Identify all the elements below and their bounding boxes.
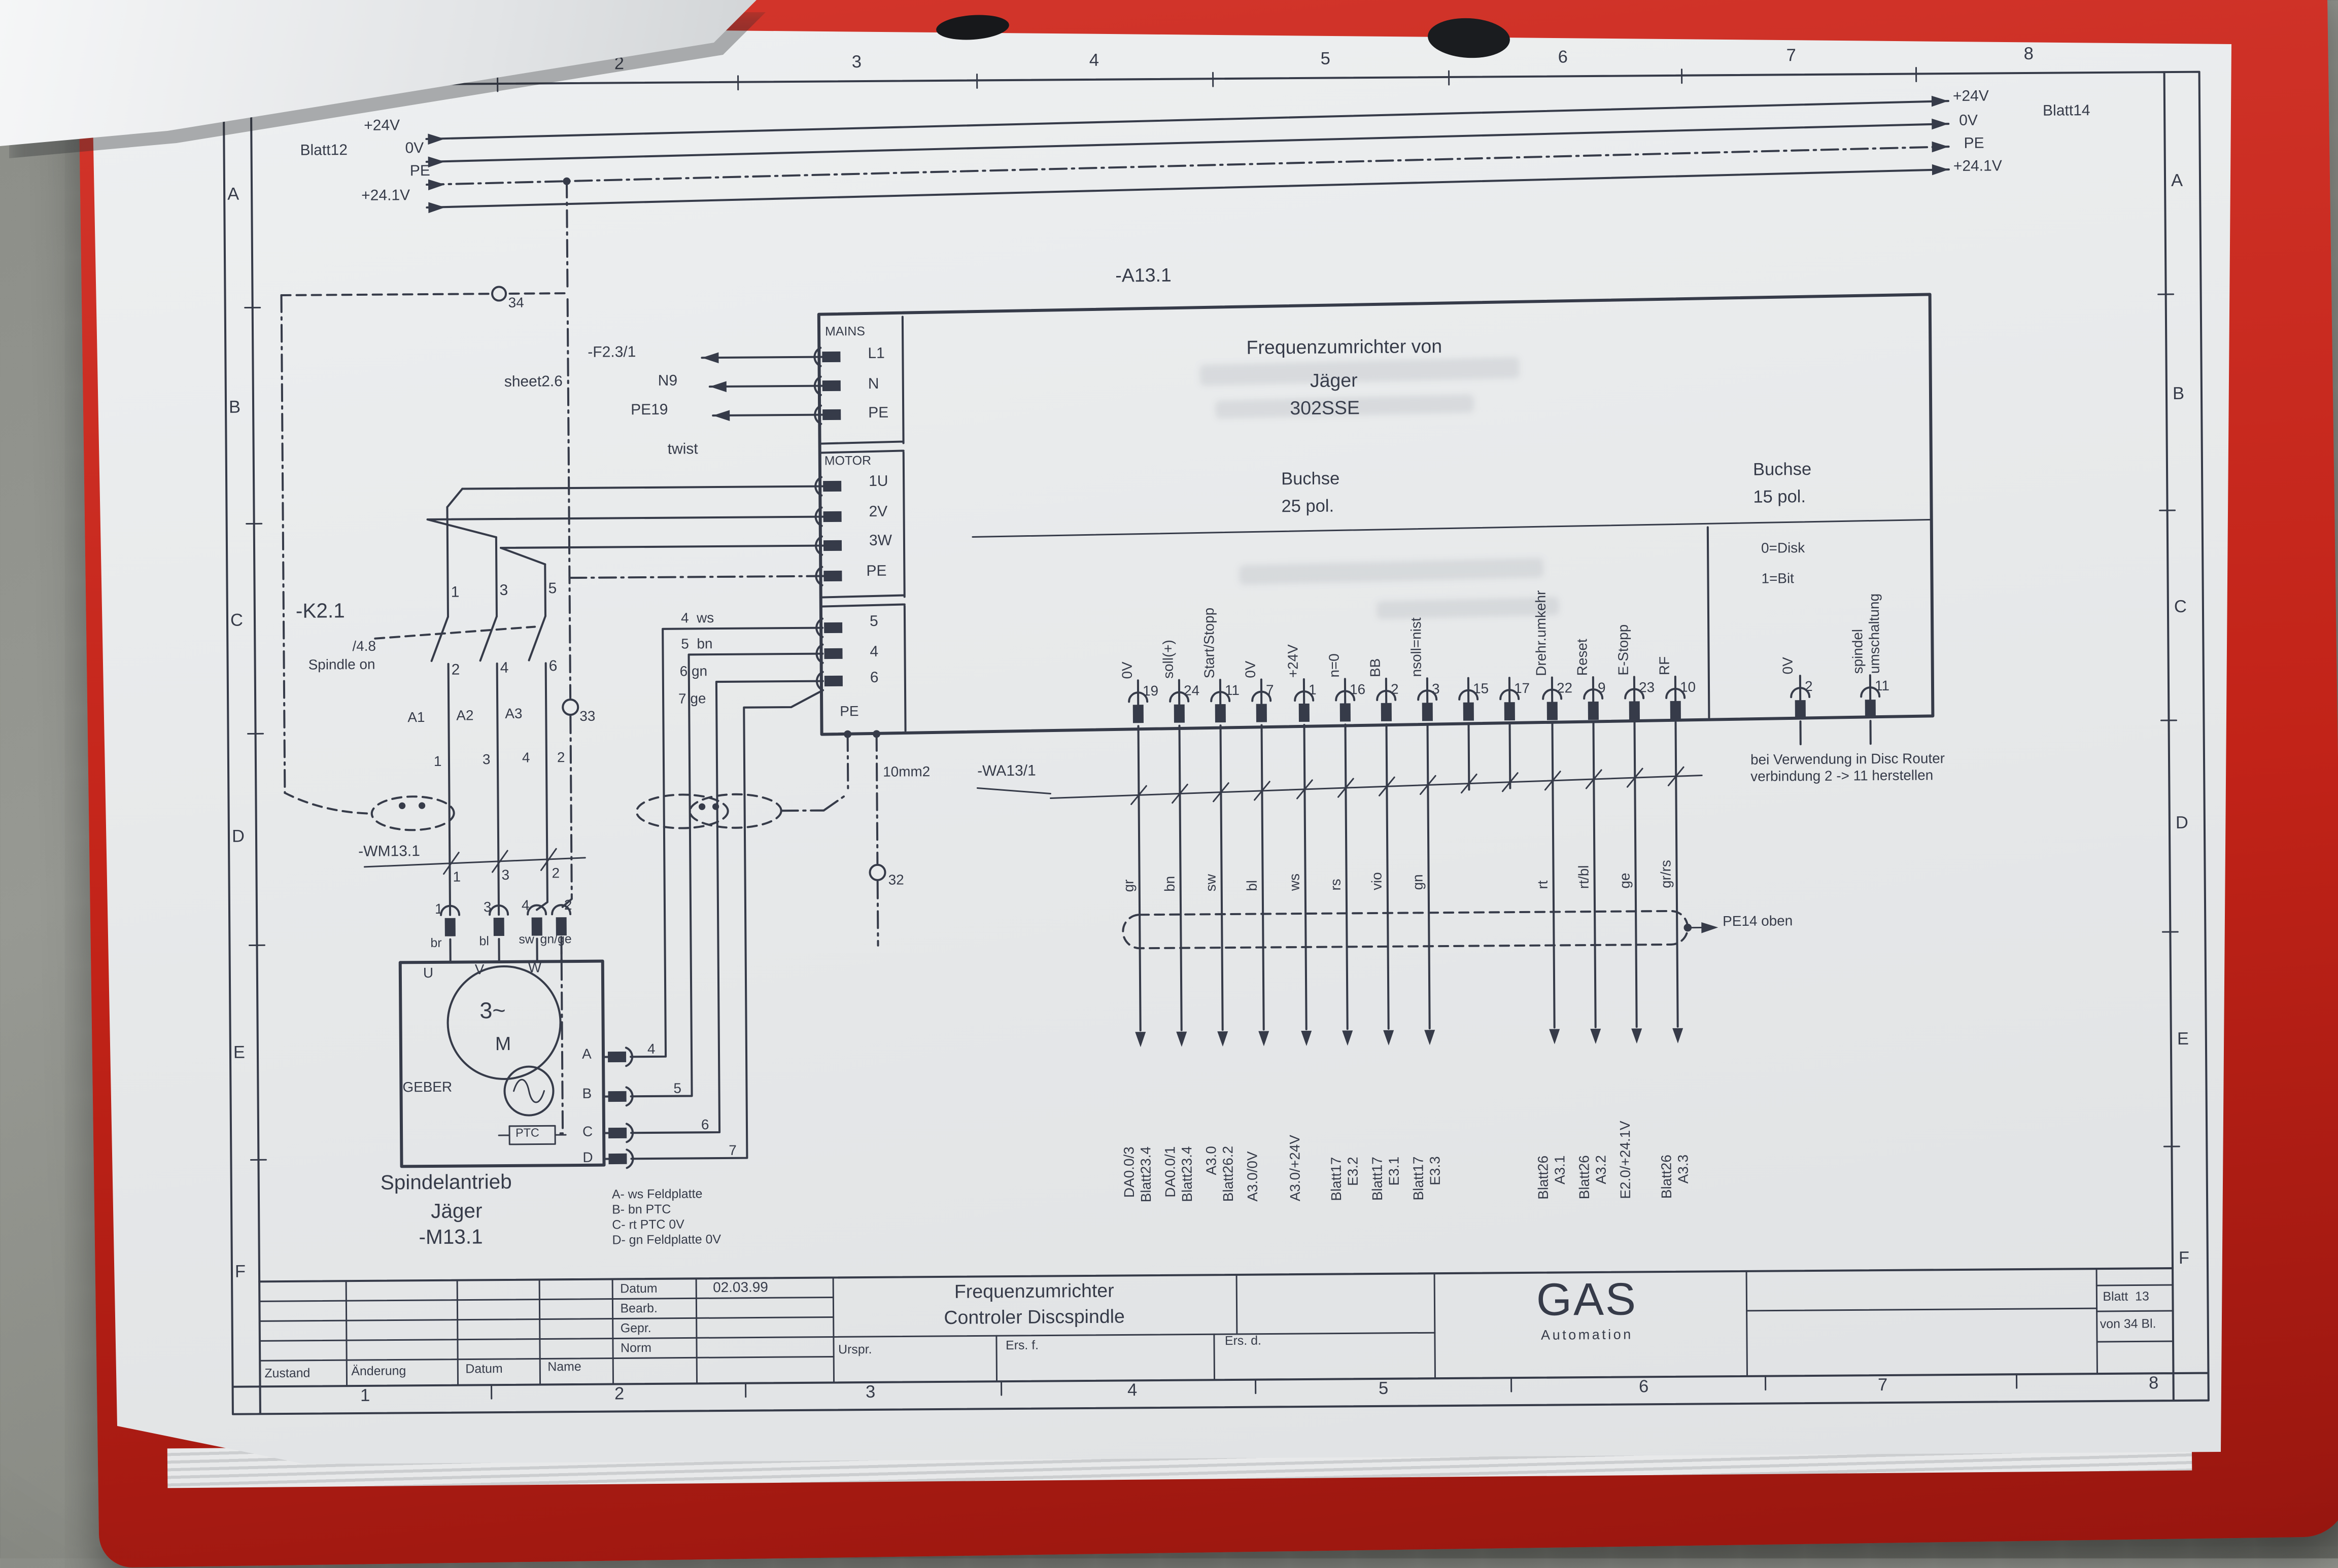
frame-number-bottom: 5 <box>1379 1380 1388 1401</box>
rail-label-left: +24.1V <box>361 188 410 205</box>
tb-datum2-label: Datum <box>465 1362 503 1377</box>
inverter-title-1: Frequenzumrichter von <box>1246 336 1442 359</box>
mains-pin-label: N <box>868 376 879 394</box>
pin25-number: 15 <box>1473 681 1489 697</box>
rail-label-right: PE <box>1964 136 1984 154</box>
motor-wire-number: 4 <box>522 750 530 766</box>
frame-number-bottom: 8 <box>2149 1375 2158 1395</box>
bit-mode-note: 1=Bit <box>1761 571 1794 587</box>
pin25-signal: BB <box>1368 658 1384 677</box>
pin25-signal: soll(+) <box>1160 640 1177 679</box>
tb-norm-label: Norm <box>621 1341 651 1356</box>
pin25-number: 1 <box>1309 682 1317 699</box>
pin25-number: 22 <box>1557 680 1572 696</box>
contact-bottom-number: 2 <box>452 663 460 680</box>
ptc-label: PTC <box>515 1128 539 1141</box>
frame-letter-left: C <box>230 612 243 633</box>
cable-wm-tag: -WM13.1 <box>358 844 420 861</box>
frame-letter-right: A <box>2171 172 2183 193</box>
rail-label-left: +24V <box>364 118 400 135</box>
wire-color-label: sw <box>1204 874 1220 891</box>
geber-terminal-label: B <box>582 1086 592 1102</box>
tb-name-label: Name <box>547 1360 581 1375</box>
pin25-signal: nsoll=nist <box>1408 617 1425 677</box>
connector15-size: 15 pol. <box>1753 489 1806 509</box>
contactor-function: Spindle on <box>308 657 375 674</box>
frame-number-top: 5 <box>1321 51 1330 71</box>
tb-gepr-label: Gepr. <box>621 1321 651 1336</box>
mains-pin-label: PE <box>868 405 888 423</box>
tb-ersd-label: Ers. d. <box>1225 1334 1261 1349</box>
pin25-signal: E-Stopp <box>1615 624 1632 676</box>
geber-wire-label: 5 bn <box>681 636 712 652</box>
sheet-ref-left: Blatt12 <box>300 143 348 160</box>
wire-destination-label: A3.0/+24V <box>1287 1135 1304 1201</box>
pin25-number: 19 <box>1143 683 1158 700</box>
motor-wire-color: bl <box>479 934 489 949</box>
contactor-sheet-ref: /4.8 <box>352 639 376 655</box>
sheet-ref-right: Blatt14 <box>2043 103 2090 121</box>
geber-pin-label: 6 <box>870 670 879 688</box>
frame-number-top: 8 <box>2024 46 2034 66</box>
geber-terminal-label: A <box>582 1047 592 1063</box>
wire-color-label: gr <box>1121 879 1138 892</box>
geber-terminal-label: D <box>582 1150 593 1166</box>
pin25-signal: +24V <box>1285 644 1302 678</box>
contact-bottom-number: 4 <box>500 660 509 678</box>
pin25-signal: Start/Stopp <box>1201 608 1218 679</box>
geber-legend-line: B- bn PTC <box>612 1203 671 1217</box>
wire-destination-label: A3.0/0V <box>1245 1151 1261 1202</box>
drive-name-2: Jäger <box>431 1199 483 1223</box>
contact-terminal-label: A3 <box>505 706 522 722</box>
schematic-drawing: Blatt12 Blatt14 -A13.1 Frequenzumrichter… <box>0 0 2338 1566</box>
wire-color-label: ge <box>1618 873 1634 888</box>
geber-legend-line: C- rt PTC 0V <box>612 1218 684 1233</box>
motor-connector-pin: 3 <box>484 899 492 916</box>
frame-letter-left: D <box>232 828 245 849</box>
tb-zustand-label: Zustand <box>264 1367 310 1381</box>
pin15-signal: 0V <box>1780 657 1797 674</box>
wire-color-label: gr/rs <box>1658 860 1674 888</box>
frame-number-bottom: 2 <box>614 1385 624 1406</box>
wire-color-label: bn <box>1162 876 1179 892</box>
frame-number-bottom: 3 <box>866 1384 875 1404</box>
wire-destination-label: E2.0/+24.1V <box>1618 1121 1634 1199</box>
frame-number-top: 4 <box>1089 52 1099 73</box>
pe-wire-size: 10mm2 <box>883 764 930 781</box>
frame-letter-left: B <box>229 399 240 420</box>
frame-letter-right: E <box>2177 1031 2189 1051</box>
geber-wire-number: 6 <box>701 1117 709 1133</box>
incoming-pe-ref: PE19 <box>631 402 668 420</box>
geber-legend-line: A- ws Feldplatte <box>612 1187 703 1202</box>
contact-bottom-number: 6 <box>549 658 558 676</box>
tb-title-2: Controler Discspindle <box>944 1306 1125 1329</box>
company-logo: GAS <box>1536 1275 1638 1328</box>
motor-wire-color: br <box>430 936 441 951</box>
pin25-number: 10 <box>1680 680 1696 696</box>
tb-datum-label: Datum <box>620 1282 658 1297</box>
wire-destination-label: Blatt26 A3.3 <box>1659 1155 1692 1199</box>
incoming-sheet-ref: sheet2.6 <box>504 374 563 392</box>
contactor-tag: -K2.1 <box>296 599 345 623</box>
pin25-signal: RF <box>1657 656 1673 675</box>
wire-marker-32: 32 <box>888 872 904 888</box>
geber-pin-label: 5 <box>870 614 878 632</box>
pin25-signal: Reset <box>1574 639 1591 676</box>
geber-wire-number: 4 <box>647 1041 656 1058</box>
pin25-number: 7 <box>1266 682 1274 699</box>
pin25-number: 24 <box>1184 683 1199 699</box>
wire-destination-label: Blatt17 E3.3 <box>1411 1156 1443 1200</box>
device-tag: -A13.1 <box>1115 265 1172 287</box>
company-logo-sub: Automation <box>1541 1327 1633 1343</box>
rail-label-right: 0V <box>1959 113 1978 131</box>
drive-name-1: Spindelantrieb <box>381 1170 512 1195</box>
pin25-signal: 0V <box>1120 661 1136 679</box>
geber-wire-label: 4 ws <box>681 610 714 627</box>
motor-wire-color: sw <box>519 933 534 948</box>
motor-pin-label: 1U <box>869 474 888 492</box>
motor-m: M <box>495 1033 511 1055</box>
frame-letter-left: F <box>235 1264 246 1284</box>
contact-top-number: 1 <box>451 585 460 603</box>
frame-number-bottom: 7 <box>1878 1377 1887 1397</box>
motor-terminal-u: U <box>423 965 433 982</box>
tb-urspr-label: Urspr. <box>838 1343 872 1357</box>
wire-color-label: gn <box>1411 874 1427 890</box>
motor-connector-pin: 1 <box>435 901 443 918</box>
wire-color-label: rt/bl <box>1576 865 1592 889</box>
pin25-number: 16 <box>1350 682 1365 698</box>
cable-core-number: 3 <box>501 867 509 884</box>
mains-section-label: MAINS <box>825 325 865 339</box>
router-note-2: verbindung 2 -> 11 herstellen <box>1750 768 1933 785</box>
connector25-size: 25 pol. <box>1281 498 1334 518</box>
cable-core-number: 1 <box>453 869 461 886</box>
motor-wire-number: 1 <box>434 754 442 770</box>
router-note-1: bei Verwendung in Disc Router <box>1750 751 1945 769</box>
frame-letter-left: A <box>227 186 239 206</box>
wire-color-label: vio <box>1369 872 1386 890</box>
wire-color-label: bl <box>1245 880 1261 891</box>
wire-color-label: rs <box>1328 879 1345 890</box>
geber-wire-number: 7 <box>729 1143 737 1159</box>
twist-note: twist <box>668 441 698 459</box>
wire-destination-label: DA0.0/3 Blatt23.4 <box>1121 1146 1154 1203</box>
cable-core-number: 2 <box>552 865 560 882</box>
pe14-ref: PE14 oben <box>1723 913 1793 930</box>
motor-terminal-w: W <box>528 960 542 976</box>
mains-pin-label: L1 <box>868 346 885 364</box>
rail-label-left: PE <box>410 163 430 181</box>
frame-letter-right: D <box>2176 815 2188 835</box>
wire-destination-label: Blatt26 A3.2 <box>1576 1155 1609 1199</box>
rail-label-right: +24V <box>1953 89 1989 107</box>
motor-wire-color: gn/ge <box>540 932 571 947</box>
motor-wire-number: 2 <box>557 750 565 766</box>
frame-number-top: 7 <box>1786 47 1796 67</box>
wire-color-label: rt <box>1535 881 1552 889</box>
schematic-lines <box>0 0 2338 1566</box>
contact-terminal-label: A2 <box>456 708 473 724</box>
wire-destination-label: DA0.0/1 Blatt23.4 <box>1162 1146 1195 1202</box>
wire-destination-label: Blatt17 E3.2 <box>1328 1157 1361 1201</box>
connector15-title: Buchse <box>1753 461 1811 481</box>
tb-title-1: Frequenzumrichter <box>954 1280 1114 1303</box>
incoming-fuse-ref: -F2.3/1 <box>588 344 636 362</box>
pin25-number: 11 <box>1225 683 1240 699</box>
disk-mode-note: 0=Disk <box>1761 540 1805 557</box>
wire-color-label: ws <box>1287 874 1303 891</box>
motor-pin-label: 3W <box>869 533 892 551</box>
contact-top-number: 3 <box>500 583 508 601</box>
motor-terminal-v: V <box>475 962 485 978</box>
geber-legend-line: D- gn Feldplatte 0V <box>612 1233 721 1248</box>
frame-number-bottom: 1 <box>360 1387 370 1408</box>
frame-number-top: 3 <box>852 54 862 74</box>
tb-aenderung-label: Änderung <box>351 1364 406 1379</box>
geber-wire-number: 5 <box>673 1081 681 1097</box>
pin25-number: 9 <box>1598 680 1606 696</box>
motor-connector-pin: 4 <box>522 898 530 914</box>
pin25-signal: n=0 <box>1327 653 1343 678</box>
frame-number-bottom: 4 <box>1127 1382 1137 1402</box>
pin25-signal: Drehr.umkehr <box>1533 590 1550 676</box>
tb-ersf-label: Ers. f. <box>1006 1339 1039 1353</box>
drive-name-3: -M13.1 <box>419 1225 483 1249</box>
geber-label: GEBER <box>402 1079 452 1096</box>
frame-letter-right: C <box>2174 599 2187 619</box>
incoming-neutral-ref: N9 <box>658 373 678 391</box>
pin25-number: 2 <box>1391 682 1399 698</box>
pin25-number: 23 <box>1639 680 1655 696</box>
frame-letter-right: F <box>2179 1250 2189 1270</box>
cable-wa-tag: -WA13/1 <box>977 763 1036 781</box>
connector25-title: Buchse <box>1281 470 1339 491</box>
frame-letter-left: E <box>233 1044 245 1065</box>
rail-label-right: +24.1V <box>1953 158 2002 176</box>
geber-terminal-label: C <box>582 1124 593 1140</box>
frame-letter-right: B <box>2173 386 2184 406</box>
motor-wire-number: 3 <box>483 752 491 768</box>
wire-marker-34: 34 <box>508 295 524 311</box>
pe-terminal-label: PE <box>840 704 858 720</box>
frame-number-bottom: 6 <box>1639 1378 1648 1399</box>
tb-sheet-number: Blatt 13 <box>2103 1290 2149 1304</box>
motor-connector-pin: 2 <box>564 897 572 914</box>
tb-sheet-total: von 34 Bl. <box>2100 1317 2156 1332</box>
motor-section-label: MOTOR <box>824 454 871 469</box>
pin25-signal: 0V <box>1243 660 1259 678</box>
wire-destination-label: Blatt17 E3.1 <box>1369 1157 1402 1201</box>
tb-datum-value: 02.03.99 <box>713 1279 768 1296</box>
tb-bearb-label: Bearb. <box>620 1302 658 1316</box>
wire-destination-label: A3.0 Blatt26.2 <box>1204 1146 1236 1202</box>
pin25-number: 17 <box>1514 681 1530 697</box>
motor-pin-label: 2V <box>869 504 887 522</box>
frame-number-top: 6 <box>1558 49 1568 69</box>
pin15-signal: spindel umschaltung <box>1850 594 1883 674</box>
pin25-number: 3 <box>1432 681 1440 698</box>
geber-pin-label: 4 <box>870 644 878 662</box>
rail-label-left: 0V <box>405 141 424 158</box>
motor-pin-label: PE <box>866 564 886 581</box>
wire-destination-label: Blatt26 A3.1 <box>1535 1156 1568 1200</box>
geber-wire-label: 7 ge <box>678 691 706 707</box>
geber-wire-label: 6 gn <box>680 664 708 680</box>
motor-symbol: 3~ <box>479 998 506 1025</box>
pin15-number: 11 <box>1875 678 1889 694</box>
wire-marker-33: 33 <box>579 709 595 725</box>
photo-of-schematic-binder: Blatt12 Blatt14 -A13.1 Frequenzumrichter… <box>0 0 2338 1558</box>
contact-top-number: 5 <box>548 581 557 599</box>
pin15-number: 2 <box>1805 679 1813 695</box>
contact-terminal-label: A1 <box>407 710 425 726</box>
